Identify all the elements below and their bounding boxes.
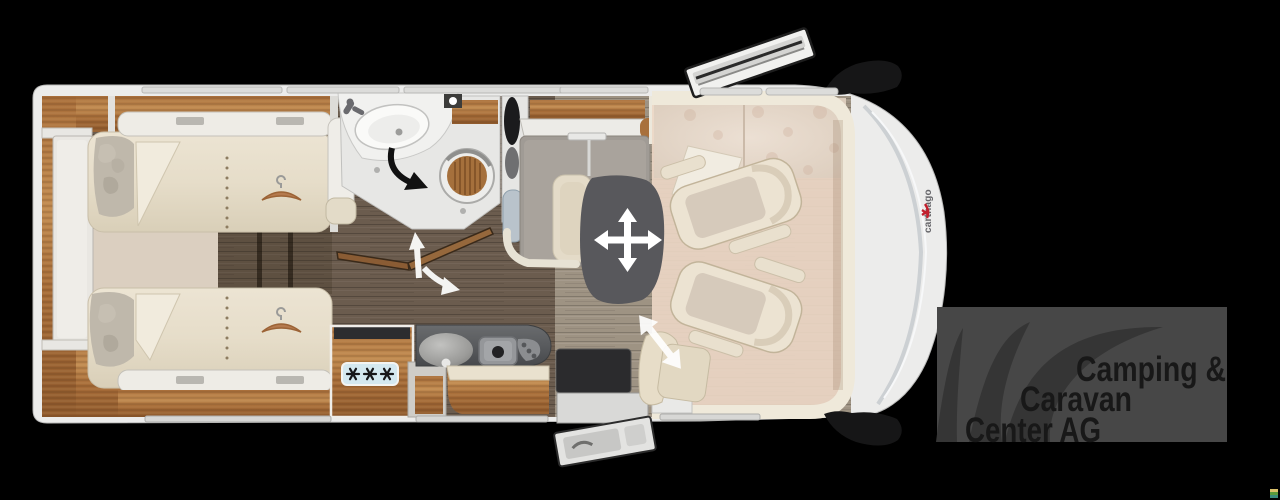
svg-text:Center AG: Center AG (965, 411, 1101, 450)
